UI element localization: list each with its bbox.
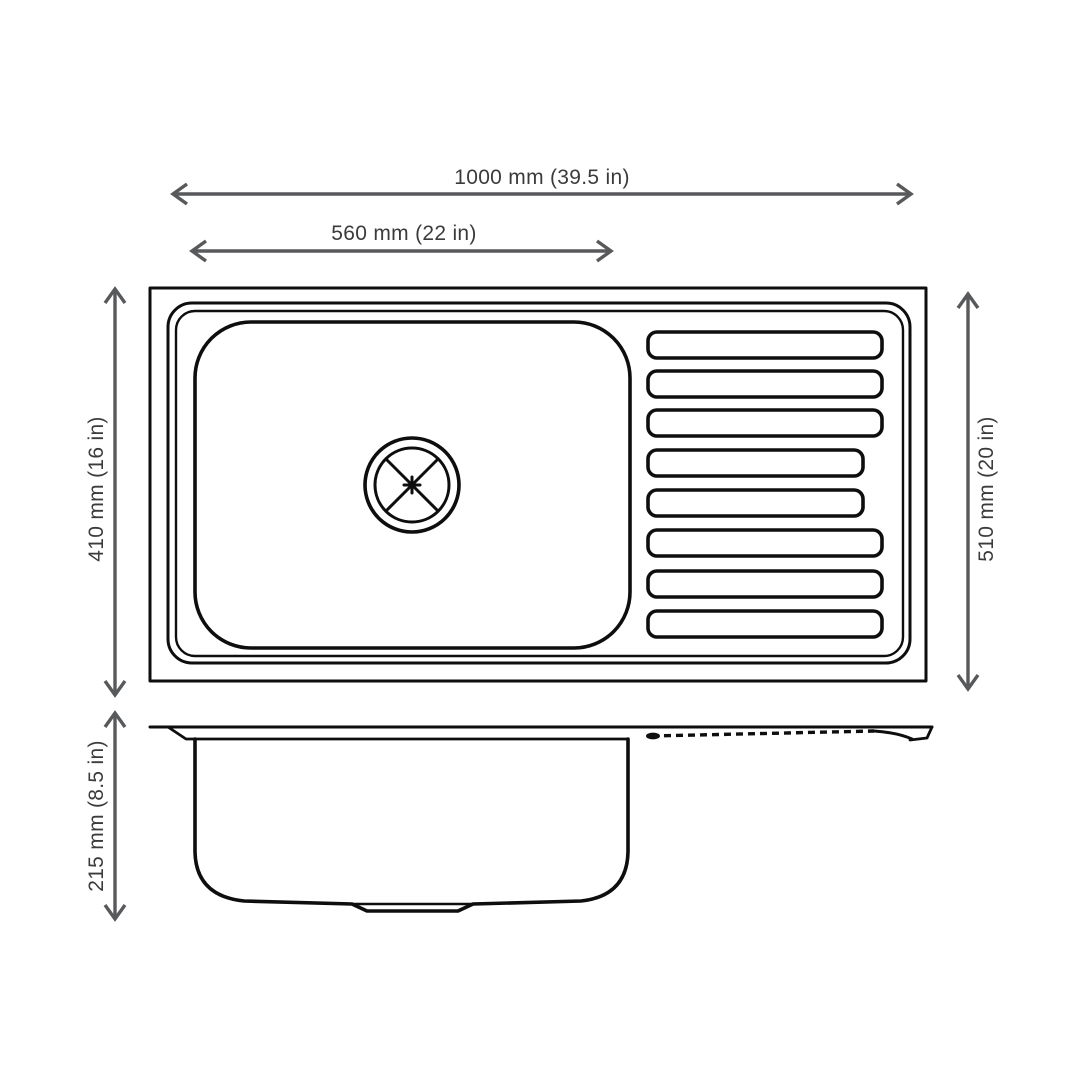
side-drainboard-end-cap bbox=[646, 733, 660, 740]
dimension-label-bowl-front-to-back: 410 mm (16 in) bbox=[85, 416, 108, 561]
drainboard-groove bbox=[648, 410, 882, 436]
top-view bbox=[150, 288, 926, 681]
dimension-label-overall-width: 1000 mm (39.5 in) bbox=[454, 166, 630, 189]
side-rim-underside-line bbox=[168, 727, 628, 739]
drainboard-groove bbox=[648, 332, 882, 358]
drainboard-grooves bbox=[648, 332, 882, 637]
top-view-outer-edge bbox=[150, 288, 926, 681]
drainboard-groove bbox=[648, 611, 882, 637]
side-drainboard-right-hook bbox=[874, 731, 912, 739]
dimension-label-bowl-width: 560 mm (22 in) bbox=[331, 222, 476, 245]
dimension-bowl-depth: 215 mm (8.5 in) bbox=[85, 713, 125, 919]
dimension-label-bowl-depth: 215 mm (8.5 in) bbox=[85, 740, 108, 892]
sink-dimension-diagram: 1000 mm (39.5 in) 560 mm (22 in) 410 mm … bbox=[0, 0, 1080, 1080]
dimension-bowl-front-to-back: 410 mm (16 in) bbox=[85, 289, 125, 695]
dimension-overall-front-to-back: 510 mm (20 in) bbox=[958, 294, 998, 689]
drainboard-groove bbox=[648, 530, 882, 556]
sink-rim-inner bbox=[176, 311, 903, 656]
drainboard-groove bbox=[648, 490, 863, 516]
side-bowl-profile bbox=[195, 739, 628, 911]
diagram-canvas: 1000 mm (39.5 in) 560 mm (22 in) 410 mm … bbox=[0, 0, 1080, 1080]
drain-icon bbox=[365, 438, 459, 532]
drainboard-groove bbox=[648, 571, 882, 597]
drainboard-groove bbox=[648, 450, 863, 476]
dimension-label-overall-front-to-back: 510 mm (20 in) bbox=[975, 416, 998, 561]
side-drainboard-dashed-line bbox=[652, 731, 874, 736]
side-right-lip bbox=[910, 727, 932, 740]
dimension-overall-width: 1000 mm (39.5 in) bbox=[173, 166, 911, 204]
drainboard-groove bbox=[648, 371, 882, 397]
side-view bbox=[150, 727, 932, 911]
dimension-bowl-width: 560 mm (22 in) bbox=[192, 222, 611, 261]
